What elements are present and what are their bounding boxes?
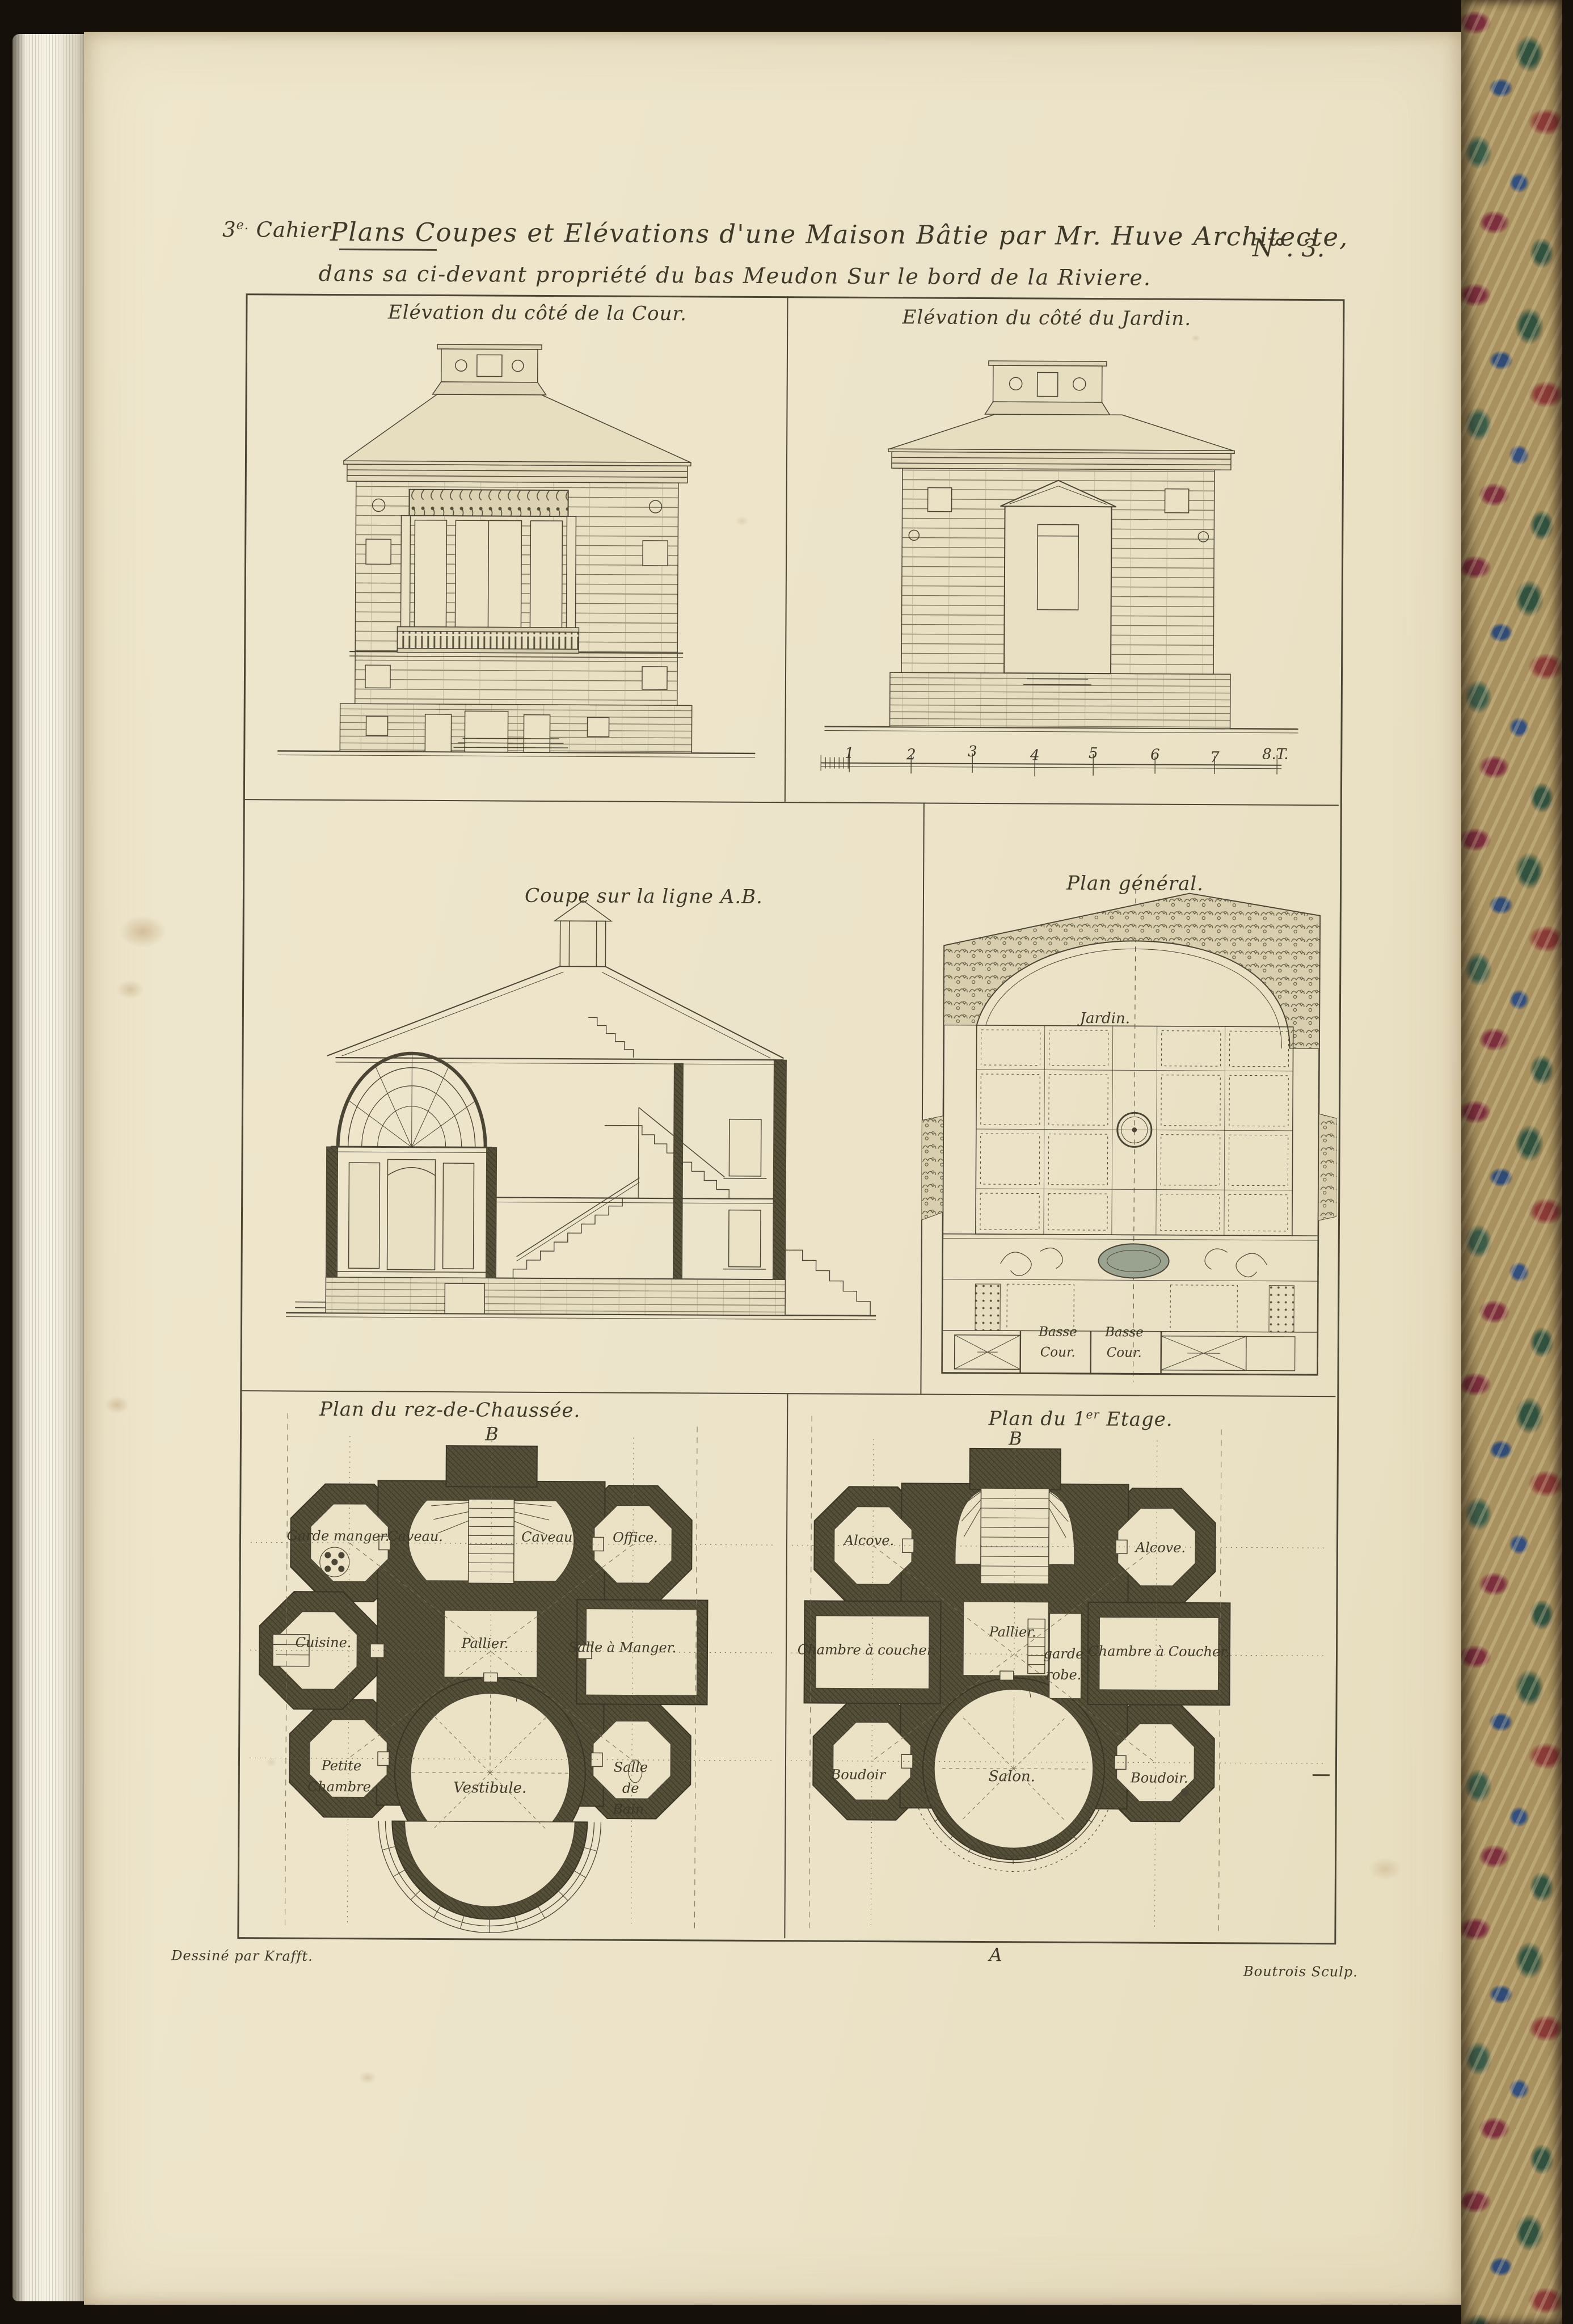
label-salle-a-manger: Salle à Manger.: [549, 1637, 696, 1659]
scale-tick: 5: [1076, 745, 1110, 762]
label-chambre-left: Chambre à coucher.: [787, 1639, 946, 1661]
label-cuisine: Cuisine.: [278, 1632, 369, 1654]
elevation-cour-drawing: [243, 293, 787, 802]
scale-tick: 3: [955, 743, 989, 760]
page-fore-edges: [12, 34, 84, 2301]
label-caveau-right: Caveau.: [509, 1527, 589, 1548]
scale-tick: 7: [1197, 749, 1232, 766]
cahier-label: 3e. Cahier: [222, 217, 331, 242]
title-underline: [339, 249, 437, 251]
marker-b-etage: B: [998, 1428, 1032, 1449]
label-salon: Salon.: [967, 1765, 1057, 1788]
scale-tick: 1: [832, 745, 866, 762]
label-jardin: Jardin.: [1060, 1007, 1150, 1030]
credit-engraver: Boutrois Sculp.: [1243, 1963, 1358, 1980]
label-pallier-etage: Pallier.: [967, 1622, 1058, 1643]
scale-tick: 6: [1138, 746, 1172, 763]
label-petite-chambre: Petite Chambre.: [307, 1755, 376, 1798]
credit-draughtsman: Dessiné par Krafft.: [171, 1948, 313, 1964]
plate-title-line1: Plans Coupes et Elévations d'une Maison …: [330, 217, 1124, 251]
label-boudoir-right: Boudoir.: [1114, 1767, 1205, 1789]
label-basse-cour-right: Basse Cour.: [1097, 1323, 1152, 1363]
label-caveau-left: Caveau.: [376, 1526, 455, 1547]
label-vestibule: Vestibule.: [433, 1776, 547, 1800]
stray-plate-mark: [1313, 1774, 1330, 1776]
marker-b-rdc: B: [475, 1423, 509, 1445]
label-alcove-left: Alcove.: [824, 1530, 914, 1552]
coupe-drawing: [240, 799, 923, 1393]
plate-title-line2: dans sa ci-devant propriété du bas Meudo…: [319, 261, 1113, 290]
elevation-jardin-drawing: [785, 296, 1342, 805]
label-pallier-rdc: Pallier.: [440, 1633, 530, 1654]
scale-tick: 8.T.: [1255, 746, 1295, 763]
label-basse-cour-left: Basse Cour.: [1031, 1322, 1085, 1363]
label-chambre-right: Chambre à Coucher.: [1079, 1641, 1238, 1663]
engraved-plate-page: 3e. Cahier Plans Coupes et Elévations d'…: [84, 32, 1461, 2305]
scale-bar-numbers: 1 2 3 4 5 6 7 8.T.: [90, 28, 1467, 36]
plan-rdc-drawing: [237, 1390, 787, 1938]
plate-content: 3e. Cahier Plans Coupes et Elévations d'…: [78, 28, 1467, 2309]
label-alcove-right: Alcove.: [1115, 1537, 1206, 1559]
scale-tick: 4: [1018, 747, 1052, 764]
marker-a-etage: A: [979, 1944, 1013, 1965]
scale-tick: 2: [894, 746, 928, 763]
book-scan: 3e. Cahier Plans Coupes et Elévations d'…: [0, 0, 1573, 2324]
label-office: Office.: [596, 1527, 675, 1548]
plate-number: N°. 3.: [1253, 234, 1325, 263]
marbled-board-edge: [1461, 0, 1562, 2324]
label-salle-de-bain: Salle de Bain.: [603, 1757, 658, 1821]
plan-general-drawing: [920, 802, 1338, 1396]
label-boudoir-left: Boudoir: [813, 1764, 904, 1786]
